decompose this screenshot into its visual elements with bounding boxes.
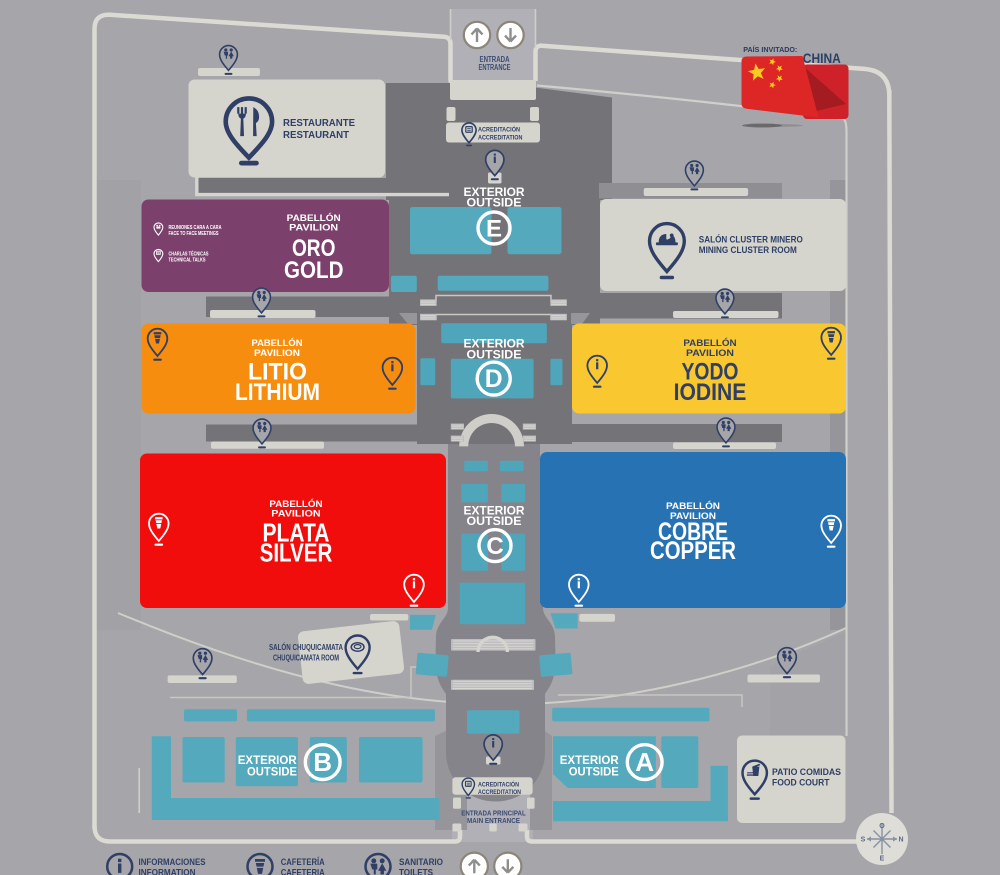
svg-text:SALÓN CHUQUICAMATA: SALÓN CHUQUICAMATA — [269, 643, 343, 652]
svg-text:PAVILION: PAVILION — [254, 348, 300, 359]
svg-text:RESTAURANT: RESTAURANT — [283, 129, 350, 141]
svg-text:ENTRANCE: ENTRANCE — [479, 63, 511, 72]
svg-text:PABELLÓN: PABELLÓN — [252, 337, 303, 349]
svg-text:COPPER: COPPER — [650, 537, 736, 565]
svg-text:OUTSIDE: OUTSIDE — [467, 347, 522, 361]
svg-text:PAVILION: PAVILION — [289, 223, 338, 234]
svg-text:INFORMATION: INFORMATION — [139, 868, 196, 875]
svg-text:FACE TO FACE MEETINGS: FACE TO FACE MEETINGS — [169, 231, 220, 237]
svg-text:E: E — [486, 215, 502, 242]
svg-text:ACREDITACIÓN: ACREDITACIÓN — [478, 781, 519, 789]
svg-text:CAFETERÍA: CAFETERÍA — [281, 857, 325, 867]
svg-text:D: D — [485, 366, 503, 393]
svg-text:TECHNICAL TALKS: TECHNICAL TALKS — [169, 258, 207, 264]
svg-text:SILVER: SILVER — [260, 538, 333, 568]
svg-text:OUTSIDE: OUTSIDE — [467, 514, 522, 528]
svg-text:TOILETS: TOILETS — [399, 868, 433, 875]
svg-text:OUTSIDE: OUTSIDE — [569, 765, 619, 779]
svg-text:PAVILION: PAVILION — [686, 348, 734, 359]
svg-text:C: C — [486, 533, 503, 560]
svg-text:CHARLAS TÉCNICAS: CHARLAS TÉCNICAS — [169, 250, 210, 258]
svg-text:INFORMACIONES: INFORMACIONES — [139, 857, 206, 867]
svg-text:SANITARIO: SANITARIO — [399, 857, 443, 867]
svg-text:MAIN ENTRANCE: MAIN ENTRANCE — [467, 816, 520, 825]
svg-text:ACREDITACIÓN: ACREDITACIÓN — [478, 125, 520, 134]
svg-text:FOOD COURT: FOOD COURT — [772, 778, 830, 789]
svg-text:MINING CLUSTER ROOM: MINING CLUSTER ROOM — [699, 245, 797, 255]
svg-text:PABELLÓN: PABELLÓN — [683, 337, 736, 349]
svg-text:GOLD: GOLD — [284, 257, 344, 284]
svg-text:A: A — [635, 747, 654, 777]
svg-text:ACCREDITATION: ACCREDITATION — [478, 135, 523, 142]
svg-text:PAÍS INVITADO:: PAÍS INVITADO: — [743, 45, 797, 54]
svg-text:RESTAURANTE: RESTAURANTE — [283, 117, 355, 129]
svg-text:CAFETERIA: CAFETERIA — [281, 868, 325, 875]
svg-text:O: O — [879, 823, 885, 830]
svg-text:B: B — [313, 747, 332, 777]
svg-text:OUTSIDE: OUTSIDE — [247, 765, 297, 779]
svg-text:CHUQUICAMATA ROOM: CHUQUICAMATA ROOM — [273, 654, 339, 663]
svg-text:CHINA: CHINA — [803, 50, 841, 66]
svg-text:S: S — [861, 837, 866, 844]
svg-text:N: N — [898, 837, 903, 844]
svg-text:E: E — [880, 856, 885, 863]
svg-text:IODINE: IODINE — [674, 379, 747, 406]
svg-text:LITHIUM: LITHIUM — [235, 379, 320, 406]
svg-text:OUTSIDE: OUTSIDE — [467, 196, 522, 210]
svg-text:ACCREDITATION: ACCREDITATION — [478, 789, 521, 796]
svg-text:SALÓN CLUSTER MINERO: SALÓN CLUSTER MINERO — [699, 234, 803, 245]
